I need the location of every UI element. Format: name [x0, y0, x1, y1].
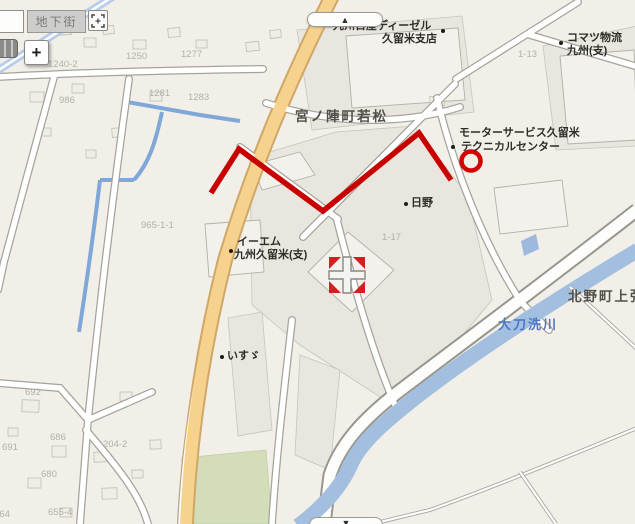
- lot-number: 1283: [188, 93, 209, 103]
- poi-dot-komatsu: [559, 41, 563, 45]
- poi-dot-nissan: [441, 29, 445, 33]
- lot-number: 691: [2, 443, 18, 453]
- lot-number: 1281: [149, 89, 170, 99]
- poi-label-hino: 日野: [411, 197, 433, 209]
- map-canvas[interactable]: 宮ノ陣町若松 北野町上弥 大刀洗川 九州日産ディーゼル 久留米支店 コマツ物流 …: [0, 0, 635, 524]
- pan-down-button[interactable]: ▼: [309, 517, 383, 524]
- poi-label-em-line2: 九州久留米(支): [234, 249, 307, 261]
- pan-up-button[interactable]: ▲: [307, 12, 383, 27]
- poi-dot-motor: [451, 145, 455, 149]
- lot-number: 1240-2: [48, 60, 78, 70]
- center-map-icon: [91, 14, 105, 28]
- area-label-kitano: 北野町上弥: [568, 290, 635, 305]
- poi-label-isuzu: いすゞ: [227, 350, 260, 362]
- zoom-in-button[interactable]: +: [24, 40, 49, 65]
- lot-number: 686: [50, 433, 66, 443]
- lot-number: 655-4: [48, 508, 72, 518]
- lot-number: 204-2: [103, 440, 127, 450]
- lot-number: 1-13: [518, 50, 537, 60]
- poi-dot-isuzu: [220, 355, 224, 359]
- poi-label-motor-line2: テクニカルセンター: [461, 141, 560, 153]
- lot-number: 664: [0, 510, 10, 520]
- lot-number: 692: [25, 388, 41, 398]
- lot-number: 680: [41, 470, 57, 480]
- poi-label-em-line1: イーエム: [237, 236, 281, 248]
- poi-dot-em: [229, 249, 233, 253]
- poi-label-komatsu-line1: コマツ物流: [567, 32, 622, 44]
- lot-number: 1277: [181, 50, 202, 60]
- lot-number: 965-1-1: [141, 221, 174, 231]
- underground-mall-button[interactable]: 地下街: [27, 10, 86, 33]
- zoom-slider[interactable]: [0, 39, 18, 58]
- poi-label-komatsu-line2: 九州(支): [567, 45, 607, 57]
- lot-number: 1-17: [382, 233, 401, 243]
- partial-button[interactable]: [0, 10, 24, 33]
- lot-number: 986: [59, 96, 75, 106]
- center-map-button[interactable]: [88, 10, 108, 31]
- poi-dot-hino: [404, 202, 408, 206]
- map-center-marker: [329, 257, 365, 293]
- base-map: [0, 0, 635, 524]
- poi-label-motor-line1: モーターサービス久留米: [459, 127, 580, 139]
- poi-label-nissan-line2: 久留米支店: [382, 33, 437, 45]
- lot-number: 1250: [126, 52, 147, 62]
- river-label: 大刀洗川: [498, 318, 558, 332]
- area-label-miyanojin: 宮ノ陣町若松: [295, 110, 388, 125]
